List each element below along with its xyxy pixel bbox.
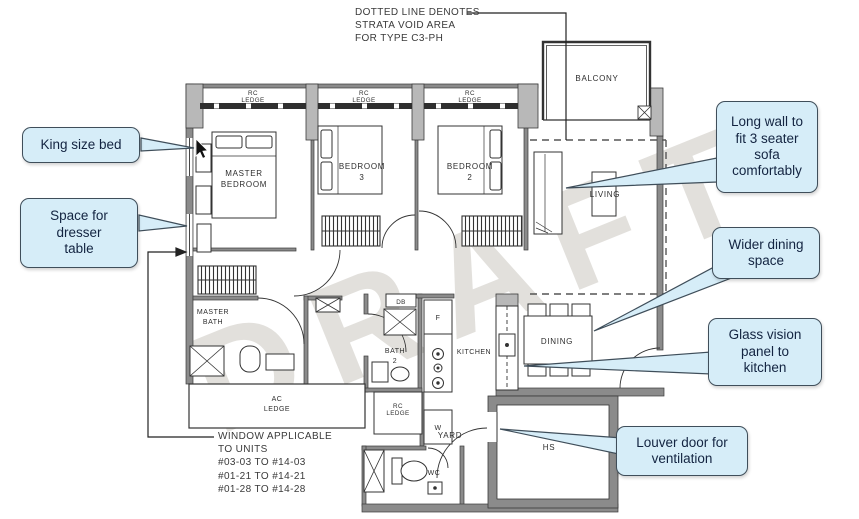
- window-applicable-note: WINDOW APPLICABLE TO UNITS #03-03 TO #14…: [218, 430, 332, 496]
- rc-ledge-label: RC: [359, 90, 369, 97]
- window-note-line: TO UNITS: [218, 443, 332, 456]
- dresser-pointer: [139, 215, 187, 231]
- master-bath-label: BATH: [203, 319, 223, 326]
- bedroom2-label: BEDROOM: [447, 162, 493, 171]
- callout-king-size-bed: King size bed: [22, 127, 140, 163]
- callout-text: King size bed: [28, 137, 134, 153]
- master-bed: [196, 132, 276, 252]
- callout-wider-dining: Wider dining space: [712, 227, 820, 279]
- callout-louver-door: Louver door for ventilation: [616, 426, 748, 476]
- db-label: DB: [396, 299, 406, 306]
- bedroom3-bed: [318, 126, 382, 194]
- rc-ledge-label: LEDGE: [241, 97, 264, 104]
- bath2-label: 2: [393, 358, 397, 365]
- ac-ledge-label: AC: [272, 396, 283, 403]
- bedroom2-label: 2: [467, 173, 472, 182]
- window-note-line: #03-03 TO #14-03: [218, 456, 332, 469]
- strata-note-line: DOTTED LINE DENOTES: [355, 6, 480, 19]
- hs-label: HS: [543, 443, 556, 452]
- bedroom3-label: BEDROOM: [339, 162, 385, 171]
- wardrobes: [198, 216, 522, 294]
- kitchen-fixtures: [424, 300, 518, 392]
- callout-text: space: [718, 253, 814, 269]
- strata-note-line: STRATA VOID AREA: [355, 19, 480, 32]
- callout-text: ventilation: [622, 451, 742, 467]
- callout-text: Space for: [26, 208, 132, 224]
- callout-text: comfortably: [722, 163, 812, 179]
- callout-text: panel to: [714, 344, 816, 360]
- ac-ledge-label: LEDGE: [264, 406, 290, 413]
- callout-text: Wider dining: [718, 237, 814, 253]
- callout-glass-vision-panel: Glass vision panel to kitchen: [708, 318, 822, 386]
- callout-text: Glass vision: [714, 327, 816, 343]
- rc-ledge-label: RC: [248, 90, 258, 97]
- sofa-pointer: [566, 158, 717, 188]
- wc-label: WC: [428, 470, 441, 477]
- strata-note-leader: [467, 13, 566, 140]
- master-bedroom-label: BEDROOM: [221, 180, 267, 189]
- callout-sofa-wall: Long wall to fit 3 seater sofa comfortab…: [716, 101, 818, 193]
- master-bath-label: MASTER: [197, 309, 229, 316]
- rc-ledge-bottom-label: LEDGE: [386, 410, 409, 417]
- yard-label: YARD: [438, 431, 462, 440]
- callout-text: Long wall to: [722, 114, 812, 130]
- kitchen-label: KITCHEN: [457, 349, 491, 356]
- dining-label: DINING: [541, 337, 573, 346]
- floor-plan-annotation-page: DRAFT: [0, 0, 859, 519]
- bedroom2-bed: [438, 126, 502, 194]
- balcony-label: BALCONY: [575, 74, 618, 83]
- rc-ledge-label: LEDGE: [352, 97, 375, 104]
- rc-ledge-bottom-label: RC: [393, 403, 403, 410]
- strata-void-note: DOTTED LINE DENOTES STRATA VOID AREA FOR…: [355, 6, 480, 46]
- callout-text: dresser: [26, 225, 132, 241]
- master-bedroom-label: MASTER: [225, 169, 263, 178]
- callout-text: kitchen: [714, 360, 816, 376]
- rc-ledge-label: RC: [465, 90, 475, 97]
- window-note-arrowhead: [176, 248, 186, 256]
- fridge-label: F: [436, 315, 441, 322]
- callout-text: table: [26, 241, 132, 257]
- callout-text: sofa: [722, 147, 812, 163]
- bedroom3-label: 3: [359, 173, 364, 182]
- master-bath-fixtures: [190, 346, 294, 376]
- living-label: LIVING: [590, 190, 620, 199]
- household-shelter: [487, 396, 618, 508]
- rc-ledge-label: LEDGE: [458, 97, 481, 104]
- callout-text: Louver door for: [622, 435, 742, 451]
- callout-dresser-space: Space for dresser table: [20, 198, 138, 268]
- strata-note-line: FOR TYPE C3-PH: [355, 32, 480, 45]
- callout-text: fit 3 seater: [722, 131, 812, 147]
- window-note-line: WINDOW APPLICABLE: [218, 430, 332, 443]
- window-note-line: #01-21 TO #14-21: [218, 470, 332, 483]
- bath2-label: BATH: [385, 348, 405, 355]
- window-note-line: #01-28 TO #14-28: [218, 483, 332, 496]
